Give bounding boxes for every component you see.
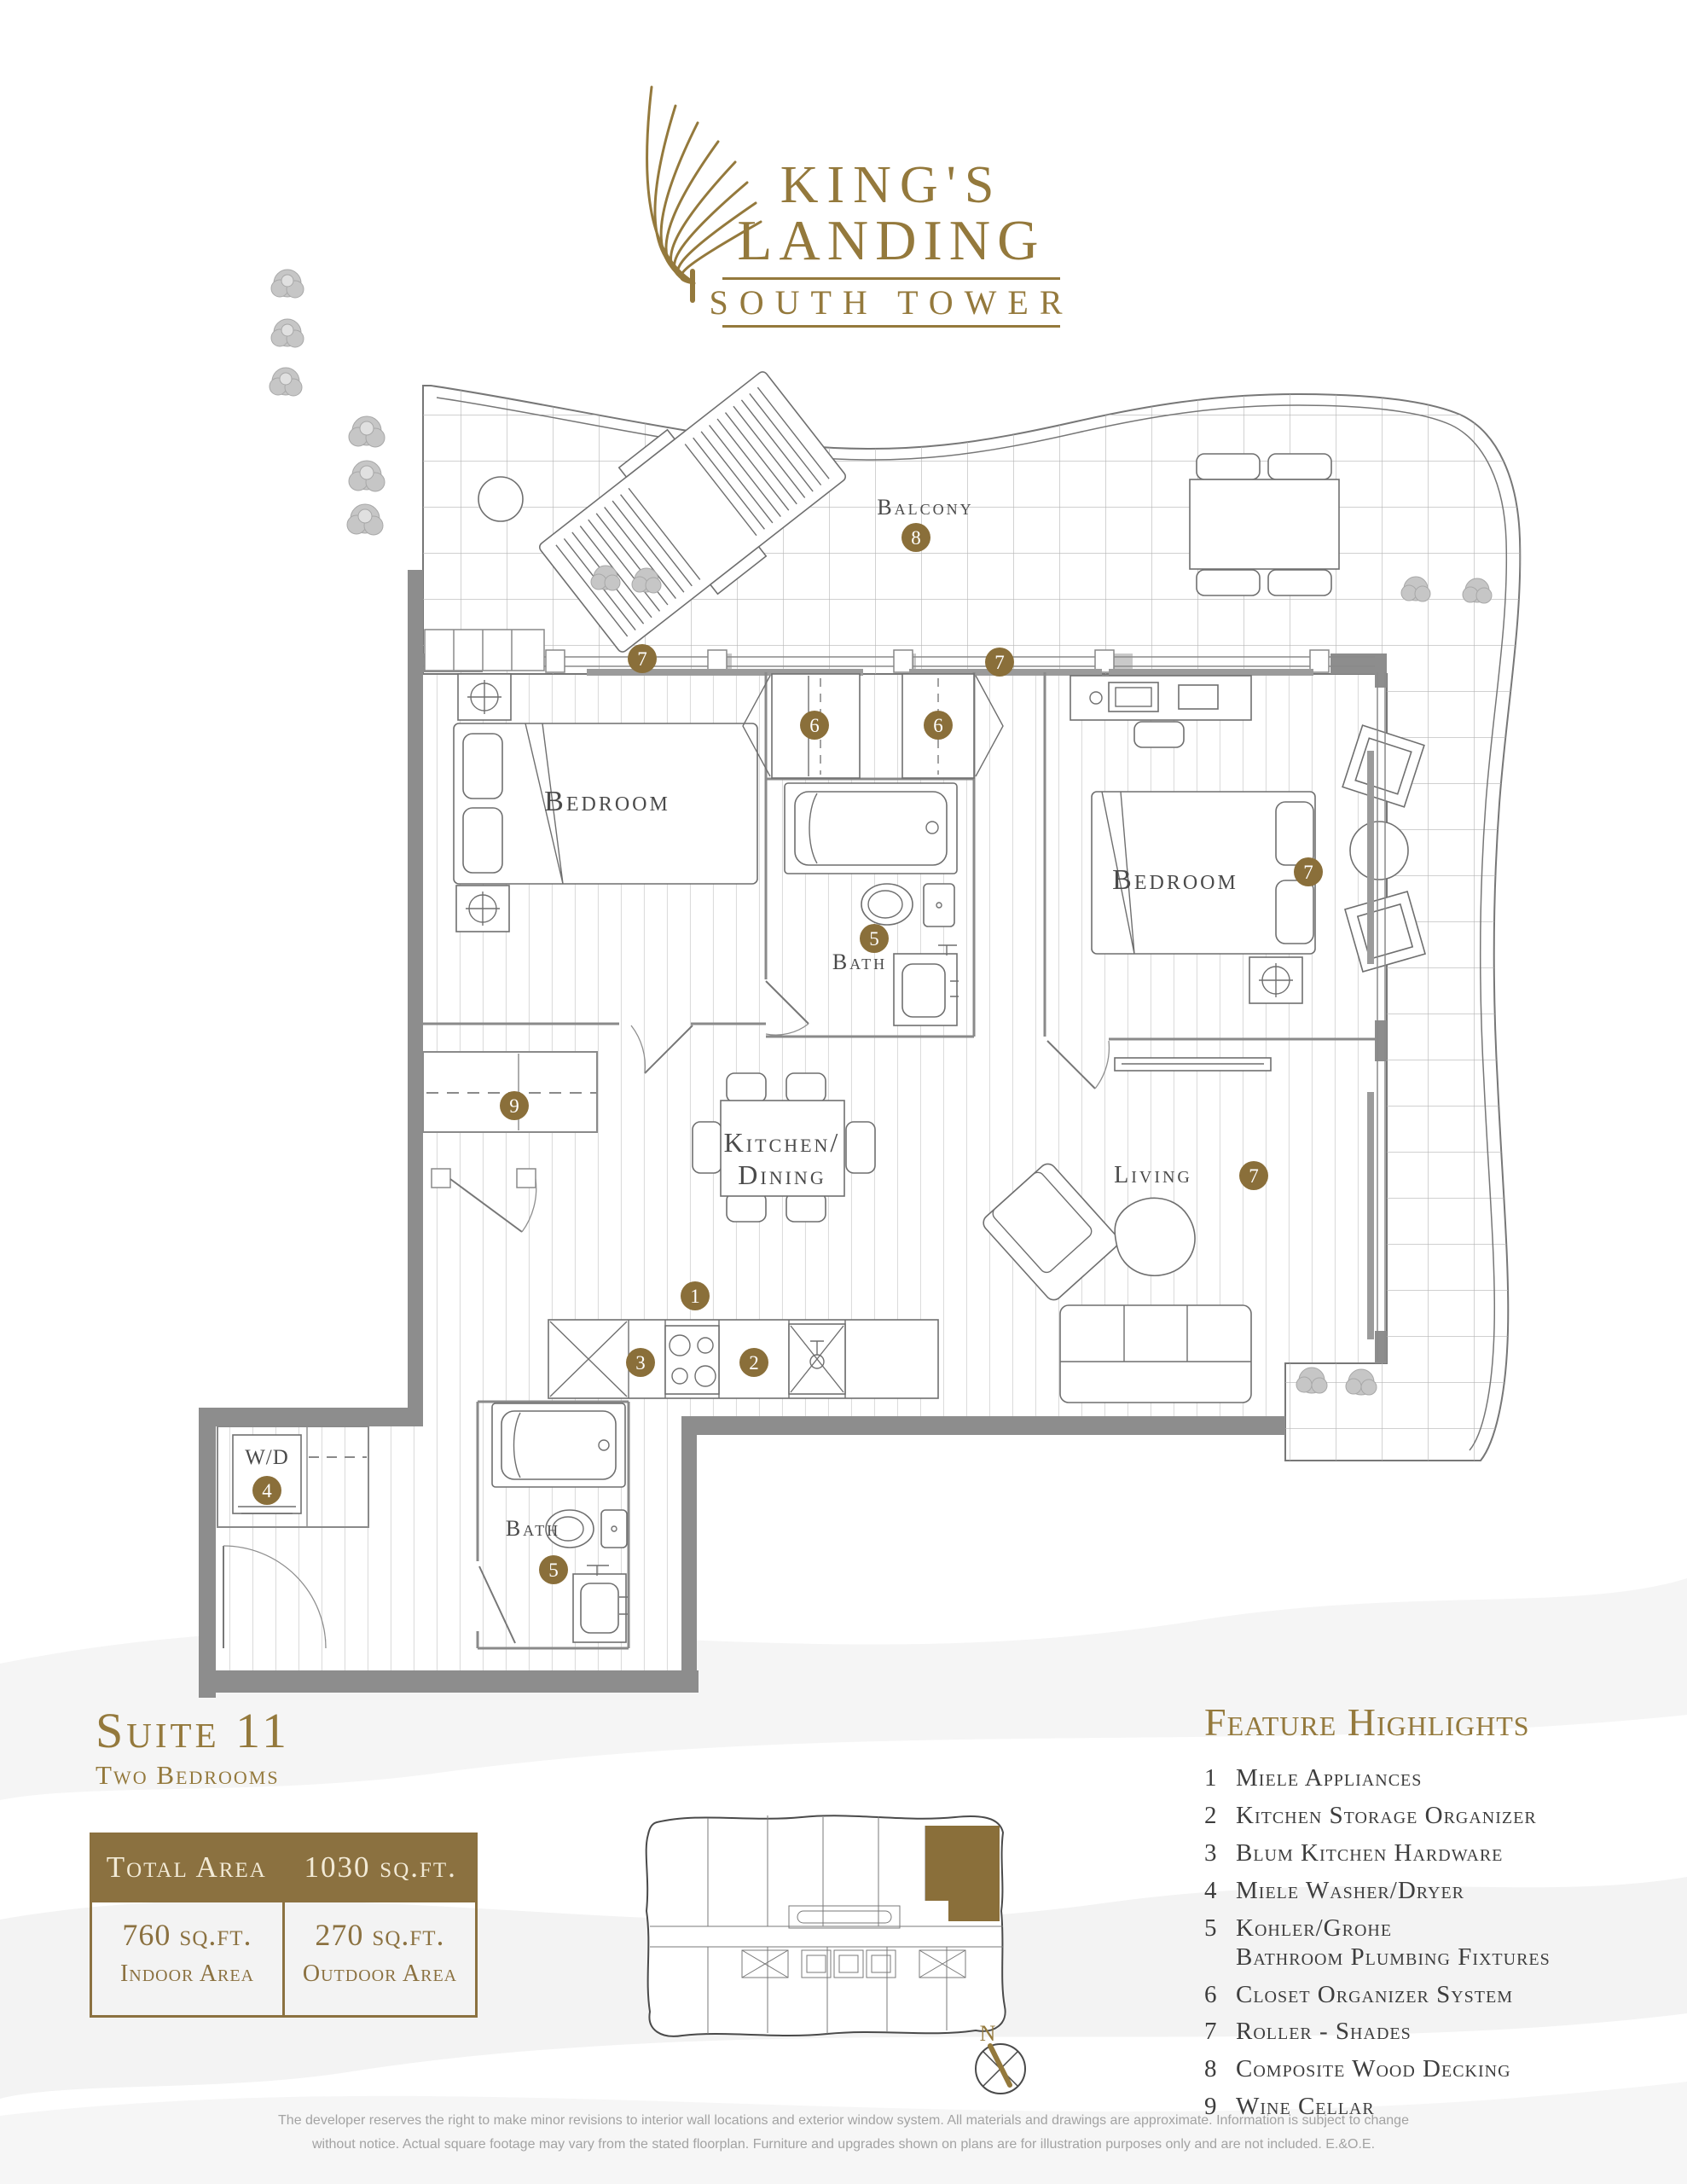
suite-subtitle: Two Bedrooms <box>96 1762 290 1788</box>
living-label: Living <box>1114 1162 1192 1188</box>
feature-label: Closet Organizer System <box>1236 1981 1513 2010</box>
feature-item-6: 6Closet Organizer System <box>1204 1981 1619 2010</box>
balcony-label: Balcony <box>877 495 973 520</box>
marker-4-badge: 4 <box>252 1476 281 1505</box>
svg-text:2: 2 <box>749 1352 759 1374</box>
disclaimer-line1: The developer reserves the right to make… <box>0 2109 1687 2133</box>
feature-highlights-title: Feature Highlights <box>1204 1703 1619 1742</box>
feature-label: Miele Washer/Dryer <box>1236 1877 1464 1906</box>
brand-rule-bottom <box>722 325 1060 328</box>
marker-7-badge-c: 7 <box>1294 857 1323 886</box>
marker-1-badge: 1 <box>681 1281 710 1310</box>
svg-text:8: 8 <box>911 527 921 549</box>
svg-text:3: 3 <box>635 1352 646 1374</box>
marker-7-badge-b: 7 <box>985 648 1014 677</box>
marker-2-badge: 2 <box>739 1348 768 1377</box>
svg-text:5: 5 <box>869 928 879 950</box>
indoor-area-label: Indoor Area <box>92 1960 282 1988</box>
feature-label: Blum Kitchen Hardware <box>1236 1839 1503 1868</box>
disclaimer-line2: without notice. Actual square footage ma… <box>0 2133 1687 2157</box>
keyplan <box>646 1815 1006 2036</box>
feature-number: 7 <box>1204 2018 1236 2047</box>
svg-text:7: 7 <box>1303 862 1313 883</box>
feature-item-8: 8Composite Wood Decking <box>1204 2055 1619 2084</box>
feature-label: Kohler/Grohe Bathroom Plumbing Fixtures <box>1236 1914 1551 1972</box>
brand-name-line1: KING'S <box>678 159 1104 212</box>
bath-lower-label: Bath <box>506 1516 560 1541</box>
svg-text:9: 9 <box>509 1095 519 1117</box>
area-table-header: Total Area 1030 sq.ft. <box>90 1833 478 1902</box>
kitchen-label-line1: Kitchen/ <box>724 1127 841 1158</box>
svg-text:7: 7 <box>637 648 647 670</box>
legal-disclaimer: The developer reserves the right to make… <box>0 2109 1687 2157</box>
svg-text:6: 6 <box>933 715 943 736</box>
marker-3-badge: 3 <box>626 1348 655 1377</box>
feature-item-7: 7Roller - Shades <box>1204 2018 1619 2047</box>
indoor-area-cell: 760 sq.ft. Indoor Area <box>92 1902 282 2015</box>
marker-7-badge-a: 7 <box>628 644 657 673</box>
marker-5-badge-lower: 5 <box>539 1555 568 1584</box>
feature-label: Composite Wood Decking <box>1236 2055 1511 2084</box>
marker-6-badge-left: 6 <box>800 711 829 740</box>
balcony-round-table <box>478 477 523 521</box>
marker-9-badge: 9 <box>500 1091 529 1120</box>
brochure-page: Balcony Bedroom Bedroom Bath Kitchen/ Di… <box>0 0 1687 2184</box>
svg-text:5: 5 <box>548 1560 559 1581</box>
svg-text:6: 6 <box>809 715 820 736</box>
feature-number: 1 <box>1204 1764 1236 1793</box>
feature-item-3: 3Blum Kitchen Hardware <box>1204 1839 1619 1868</box>
outdoor-area-value: 270 sq.ft. <box>285 1917 475 1953</box>
feature-item-4: 4Miele Washer/Dryer <box>1204 1877 1619 1906</box>
svg-text:4: 4 <box>262 1480 272 1501</box>
feature-highlights: Feature Highlights 1Miele Appliances 2Ki… <box>1204 1703 1619 2130</box>
feature-number: 8 <box>1204 2055 1236 2084</box>
bedroom-right-label: Bedroom <box>1112 864 1238 896</box>
indoor-area-value: 760 sq.ft. <box>92 1917 282 1953</box>
feature-number: 2 <box>1204 1802 1236 1831</box>
brand-subtitle: SOUTH TOWER <box>678 280 1104 325</box>
area-table: Total Area 1030 sq.ft. 760 sq.ft. Indoor… <box>90 1833 478 2018</box>
marker-5-badge-upper: 5 <box>860 924 889 953</box>
marker-8-badge: 8 <box>901 523 930 552</box>
floor-plan: Balcony Bedroom Bedroom Bath Kitchen/ Di… <box>199 270 1520 1698</box>
bath-upper-label: Bath <box>832 950 887 974</box>
kitchen-label-line2: Dining <box>738 1159 826 1190</box>
outdoor-area-label: Outdoor Area <box>285 1960 475 1988</box>
svg-text:1: 1 <box>690 1286 700 1307</box>
svg-text:7: 7 <box>994 652 1005 673</box>
washer-dryer-label: W/D <box>245 1446 289 1469</box>
total-area-value: 1030 sq.ft. <box>284 1833 478 1902</box>
feature-number: 6 <box>1204 1981 1236 2010</box>
brand-logo: KING'S LANDING SOUTH TOWER <box>678 159 1104 328</box>
feature-number: 4 <box>1204 1877 1236 1906</box>
compass-north-label: N <box>980 2021 996 2046</box>
bedroom-left-label: Bedroom <box>544 786 670 817</box>
feature-number: 3 <box>1204 1839 1236 1868</box>
feature-item-5: 5Kohler/Grohe Bathroom Plumbing Fixtures <box>1204 1914 1619 1972</box>
marker-7-badge-d: 7 <box>1239 1161 1268 1190</box>
feature-number: 5 <box>1204 1914 1236 1972</box>
suite-title: Suite 11 <box>96 1706 290 1756</box>
outdoor-area-cell: 270 sq.ft. Outdoor Area <box>282 1902 475 2015</box>
brand-name-line2: LANDING <box>678 212 1104 270</box>
feature-item-1: 1Miele Appliances <box>1204 1764 1619 1793</box>
feature-label: Kitchen Storage Organizer <box>1236 1802 1537 1831</box>
svg-text:7: 7 <box>1249 1165 1259 1187</box>
feature-item-2: 2Kitchen Storage Organizer <box>1204 1802 1619 1831</box>
feature-label: Roller - Shades <box>1236 2018 1412 2047</box>
area-table-body: 760 sq.ft. Indoor Area 270 sq.ft. Outdoo… <box>90 1902 478 2018</box>
feature-label: Miele Appliances <box>1236 1764 1422 1793</box>
total-area-label: Total Area <box>90 1833 284 1902</box>
suite-heading: Suite 11 Two Bedrooms <box>96 1706 290 1788</box>
marker-6-badge-right: 6 <box>924 711 953 740</box>
